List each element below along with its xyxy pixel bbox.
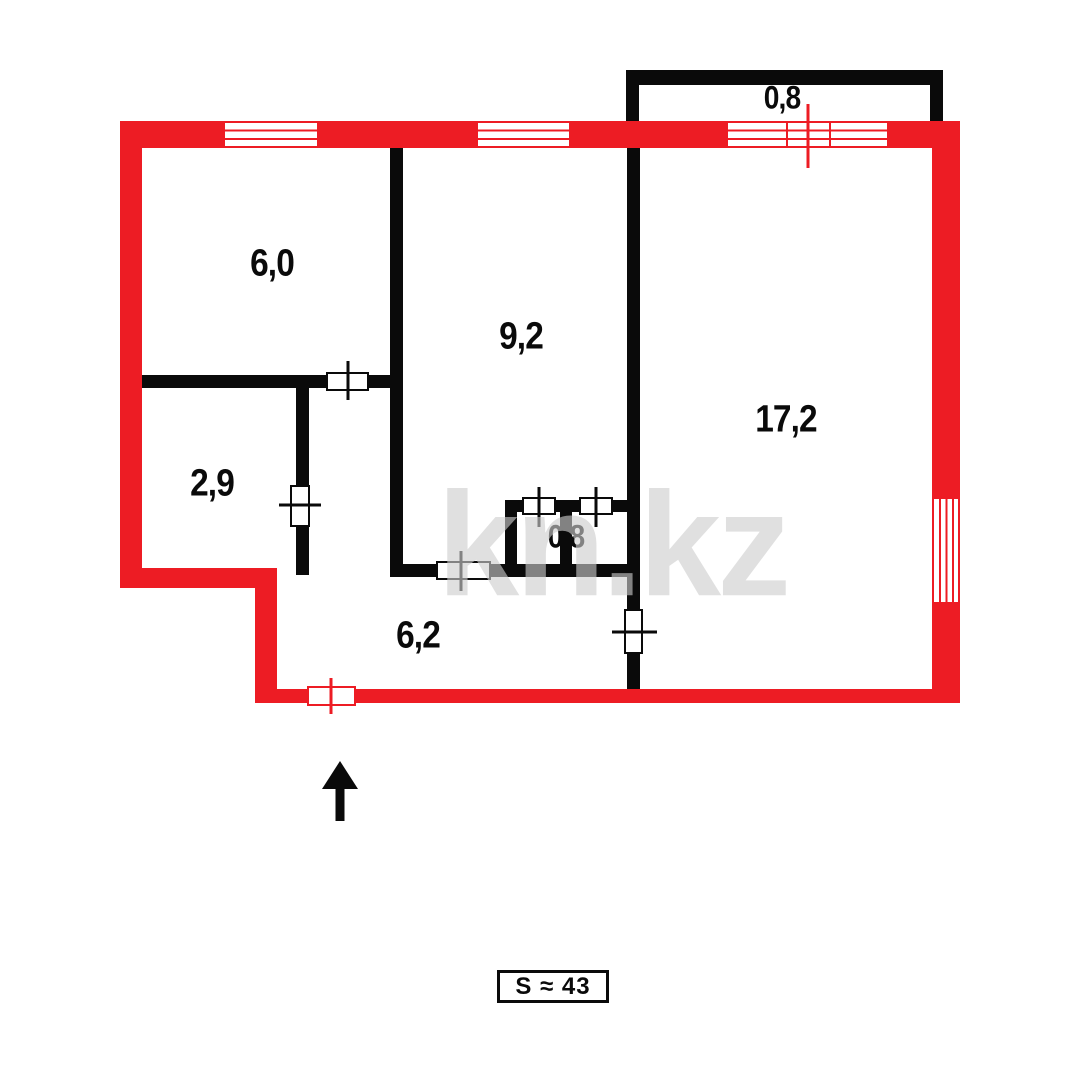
room-label-2-9: 2,9 <box>190 463 234 506</box>
balcony-wall-right <box>930 70 943 121</box>
interior-walls <box>142 148 640 689</box>
floor-plan-canvas: 6,0 9,2 17,2 2,9 0,8 6,2 0,8 kn.kz S ≈ 4… <box>0 0 1080 1080</box>
wall-living-room-left-a <box>627 148 640 610</box>
wall-small-room-right-b <box>296 525 309 575</box>
wall-small-room-right-a <box>296 375 309 487</box>
window-room-middle <box>477 122 570 147</box>
door-room-top-left <box>327 361 368 400</box>
wall-wc-left <box>505 500 517 577</box>
windows <box>224 104 959 603</box>
room-label-6-0: 6,0 <box>250 243 294 286</box>
room-label-balcony-0-8: 0,8 <box>764 80 801 117</box>
room-label-9-2: 9,2 <box>499 316 543 359</box>
room-label-17-2: 17,2 <box>755 399 817 442</box>
door-openings <box>279 361 657 714</box>
wall-step-horizontal <box>120 568 277 588</box>
room-label-6-2: 6,2 <box>396 615 440 658</box>
floor-plan-drawing <box>0 0 1080 1080</box>
door-living-room <box>612 610 657 653</box>
wall-left <box>120 121 142 588</box>
door-room-small-left <box>279 486 321 526</box>
window-balcony-door <box>727 104 888 168</box>
wall-wc-top-c <box>612 500 627 512</box>
wall-between-rooms-left <box>390 148 403 577</box>
wall-right <box>932 121 960 703</box>
total-area-box: S ≈ 43 <box>497 970 609 1003</box>
window-living-room-right <box>933 498 959 603</box>
wall-bottom <box>255 689 960 703</box>
door-room-middle <box>437 551 490 591</box>
north-arrow-head <box>322 761 358 789</box>
wall-living-room-left-b <box>627 653 640 689</box>
door-entrance <box>308 678 355 714</box>
balcony-wall-left <box>626 70 639 121</box>
exterior-walls <box>120 121 960 703</box>
wall-under-room-top-left-b <box>368 375 403 388</box>
wall-under-room-middle-a <box>390 564 437 577</box>
north-arrow <box>322 761 358 821</box>
window-room-top-left <box>224 122 318 147</box>
door-wc-right <box>580 487 612 527</box>
room-label-wc-0-8: 0,8 <box>548 519 585 556</box>
wall-step-vertical <box>255 568 277 703</box>
north-arrow-shaft <box>336 789 345 821</box>
total-area-label: S ≈ 43 <box>515 973 590 1001</box>
